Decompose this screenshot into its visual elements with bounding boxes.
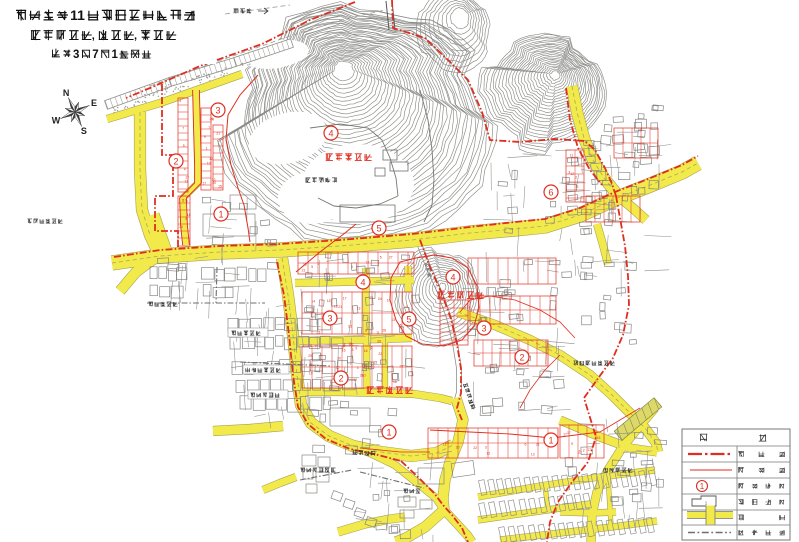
svg-text:17: 17: [587, 448, 591, 452]
svg-text:13: 13: [184, 180, 188, 184]
svg-text:12: 12: [570, 172, 574, 176]
svg-text:27: 27: [363, 365, 367, 369]
svg-text:17: 17: [202, 181, 206, 185]
svg-text:20: 20: [456, 446, 460, 450]
svg-text:22: 22: [473, 446, 477, 450]
svg-text:3: 3: [352, 348, 354, 352]
svg-text:8: 8: [365, 328, 367, 332]
svg-text:1: 1: [182, 198, 184, 202]
svg-text:1: 1: [206, 147, 208, 151]
svg-text:15: 15: [597, 436, 601, 440]
svg-text:6: 6: [548, 187, 553, 197]
svg-text:3: 3: [485, 446, 487, 450]
svg-text:4: 4: [328, 128, 333, 138]
svg-text:7: 7: [182, 126, 184, 130]
svg-text:15: 15: [218, 185, 222, 189]
svg-text:20: 20: [210, 117, 214, 121]
svg-text:E: E: [91, 98, 97, 108]
svg-text:13: 13: [348, 325, 352, 329]
svg-text:S: S: [81, 126, 87, 136]
svg-text:2: 2: [338, 373, 343, 383]
svg-text:1: 1: [317, 262, 319, 266]
svg-text:12: 12: [486, 452, 490, 456]
svg-text:7: 7: [208, 126, 210, 130]
svg-text:14: 14: [327, 299, 331, 303]
svg-text:1: 1: [112, 49, 119, 61]
svg-text:11: 11: [570, 154, 574, 158]
svg-text:12: 12: [353, 378, 357, 382]
svg-text:24: 24: [378, 297, 382, 301]
svg-text:10: 10: [309, 372, 313, 376]
svg-text:6: 6: [406, 305, 408, 309]
svg-text:23: 23: [336, 366, 340, 370]
svg-text:12: 12: [207, 162, 211, 166]
svg-text:4: 4: [450, 272, 455, 282]
svg-text:1: 1: [320, 353, 322, 357]
svg-text:17: 17: [343, 297, 347, 301]
svg-text:21: 21: [338, 305, 342, 309]
svg-text:22: 22: [378, 352, 382, 356]
svg-text:9: 9: [355, 346, 357, 350]
svg-text:17: 17: [578, 451, 582, 455]
svg-text:3: 3: [73, 49, 79, 61]
svg-text:5: 5: [179, 99, 181, 103]
svg-text:20: 20: [377, 340, 381, 344]
svg-text:1: 1: [700, 482, 705, 491]
svg-text:14: 14: [311, 300, 315, 304]
svg-text:5: 5: [343, 344, 345, 348]
svg-text:W: W: [52, 116, 61, 126]
svg-text:4: 4: [360, 277, 365, 287]
svg-text:9: 9: [571, 442, 573, 446]
svg-text:20: 20: [337, 356, 341, 360]
svg-text:12: 12: [212, 178, 216, 182]
svg-text:23: 23: [350, 343, 354, 347]
svg-text:28: 28: [399, 364, 403, 368]
svg-text:15: 15: [373, 361, 377, 365]
svg-text:1: 1: [548, 435, 553, 445]
svg-text:7: 7: [315, 345, 317, 349]
svg-text:3: 3: [215, 105, 220, 115]
svg-text:,: ,: [92, 30, 95, 42]
svg-text:27: 27: [389, 255, 393, 259]
svg-text:12: 12: [209, 157, 213, 161]
svg-text:2: 2: [519, 352, 524, 362]
svg-text:27: 27: [362, 374, 366, 378]
svg-text:3: 3: [327, 313, 332, 323]
svg-text:5: 5: [380, 256, 382, 260]
svg-text:21: 21: [536, 443, 540, 447]
svg-text:2: 2: [173, 156, 178, 166]
svg-text:25: 25: [317, 330, 321, 334]
svg-text:N: N: [63, 88, 70, 98]
svg-text:4: 4: [184, 167, 186, 171]
svg-text:2: 2: [371, 346, 373, 350]
svg-text:7: 7: [92, 49, 98, 61]
svg-text:21: 21: [216, 132, 220, 136]
svg-text:8: 8: [310, 344, 312, 348]
svg-text:3: 3: [481, 323, 486, 333]
svg-text:3: 3: [577, 185, 579, 189]
svg-text:18: 18: [334, 305, 338, 309]
svg-text:5: 5: [376, 223, 381, 233]
svg-text:,: ,: [134, 30, 137, 42]
svg-text:21: 21: [302, 269, 306, 273]
svg-text:13: 13: [391, 318, 395, 322]
svg-text:16: 16: [364, 349, 368, 353]
svg-text:23: 23: [445, 441, 449, 445]
svg-text:6: 6: [525, 443, 527, 447]
svg-text:3: 3: [351, 265, 353, 269]
svg-text:5: 5: [183, 144, 185, 148]
svg-text:13: 13: [357, 307, 361, 311]
svg-text:16: 16: [393, 380, 397, 384]
svg-text:12: 12: [366, 261, 370, 265]
svg-text:11: 11: [70, 7, 85, 23]
svg-text:1: 1: [386, 427, 391, 437]
svg-text:5: 5: [406, 314, 411, 324]
svg-text:16: 16: [342, 348, 346, 352]
svg-text:11: 11: [376, 331, 380, 335]
svg-text:17: 17: [185, 176, 189, 180]
svg-text:17: 17: [567, 431, 571, 435]
svg-text:1: 1: [218, 209, 223, 219]
svg-text:13: 13: [531, 452, 535, 456]
svg-text:9: 9: [204, 135, 206, 139]
svg-text:2: 2: [583, 449, 585, 453]
svg-text:25: 25: [308, 354, 312, 358]
svg-text:5: 5: [311, 265, 313, 269]
svg-text:2: 2: [575, 175, 577, 179]
svg-text:28: 28: [382, 328, 386, 332]
svg-text:3: 3: [357, 366, 359, 370]
